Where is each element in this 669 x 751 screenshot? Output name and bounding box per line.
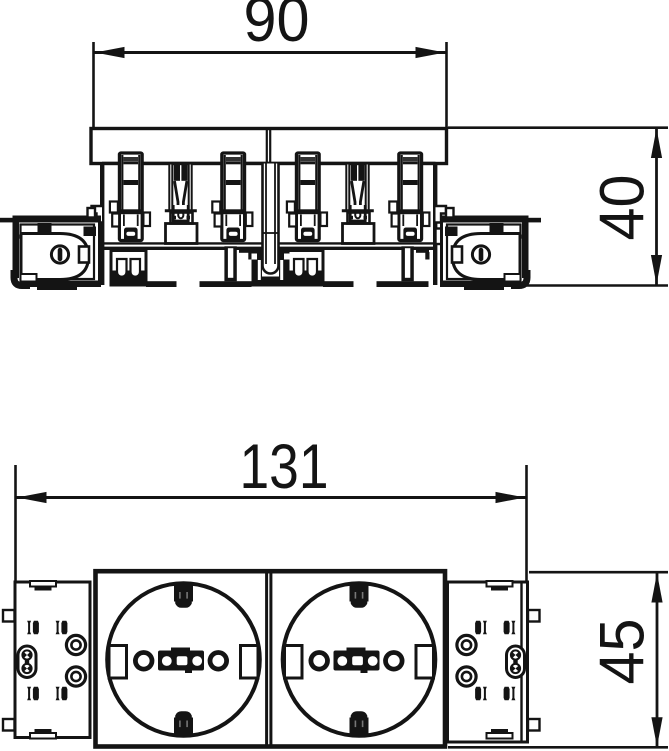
svg-text:131: 131 [240,432,329,502]
svg-text:90: 90 [244,0,310,55]
svg-text:40: 40 [588,175,658,241]
svg-text:45: 45 [588,619,658,685]
